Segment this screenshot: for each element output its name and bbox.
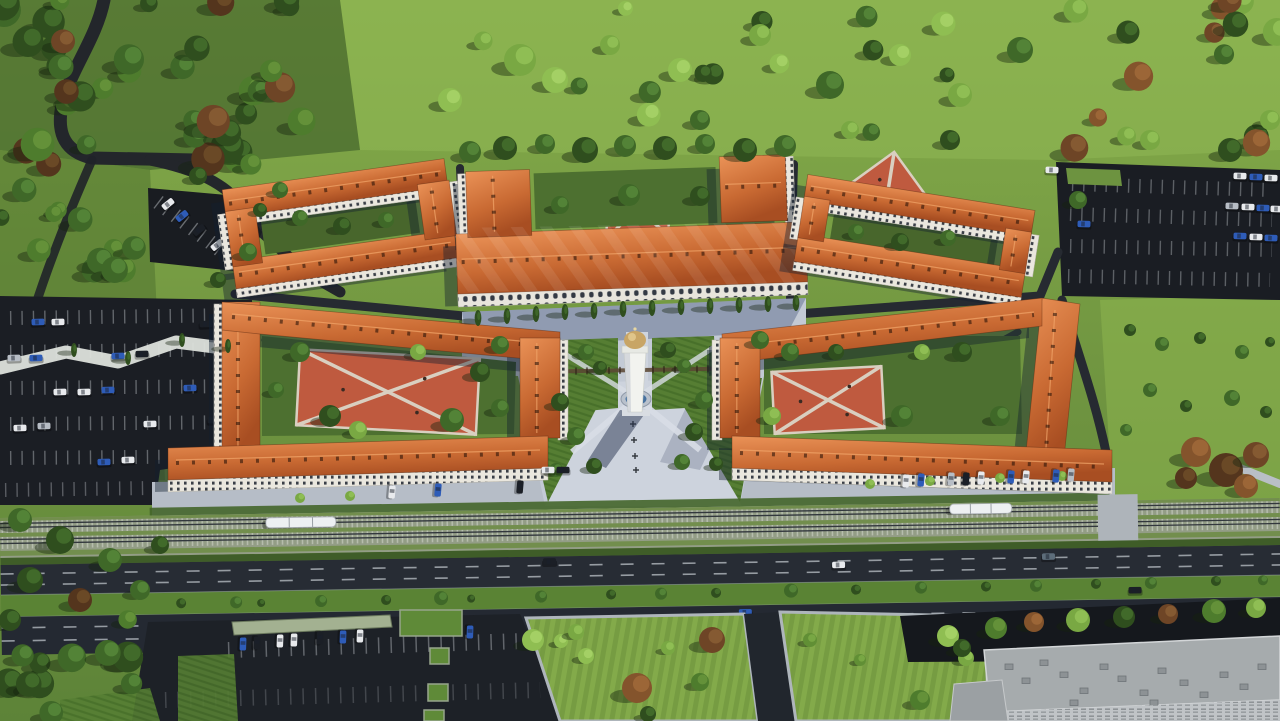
tree-highlight — [858, 655, 865, 662]
car-glass — [1237, 234, 1241, 239]
tree-highlight — [945, 627, 957, 639]
tree-highlight — [702, 393, 712, 403]
tree-highlight — [945, 69, 953, 77]
tree-highlight — [808, 634, 816, 642]
car-glass — [203, 322, 207, 327]
tree-highlight — [598, 362, 606, 370]
tree-highlight — [1071, 136, 1086, 151]
car — [1248, 173, 1263, 182]
tree-highlight — [777, 55, 788, 66]
tree-highlight — [111, 259, 126, 274]
planter-2 — [430, 648, 449, 664]
car — [1263, 174, 1278, 183]
tree-highlight — [24, 29, 41, 46]
scene — [0, 0, 1280, 721]
car — [541, 467, 556, 476]
tree-highlight — [227, 341, 230, 348]
car — [1005, 469, 1015, 485]
car — [1127, 587, 1142, 596]
bush — [1124, 324, 1136, 336]
scene-root — [0, 0, 1280, 721]
tree-highlight — [662, 138, 675, 151]
car-glass — [1274, 207, 1278, 212]
roof-vent — [1022, 678, 1030, 684]
tram — [946, 503, 1012, 515]
car-glass — [964, 476, 969, 480]
tree-highlight — [1148, 384, 1156, 392]
tree-highlight — [999, 474, 1005, 480]
tree-highlight — [1124, 128, 1134, 138]
tree-highlight — [1135, 64, 1151, 80]
tree-highlight — [692, 425, 702, 435]
tree-highlight — [929, 477, 935, 483]
tree-highlight — [757, 26, 769, 38]
roof-vent — [1180, 680, 1188, 686]
car — [6, 354, 21, 363]
bush — [345, 491, 355, 501]
car-glass — [1132, 588, 1136, 593]
tree-highlight — [869, 125, 879, 135]
car — [960, 471, 970, 487]
tram-crossing — [1098, 494, 1139, 543]
car-glass — [125, 458, 129, 463]
tree-highlight — [21, 180, 34, 193]
tree-highlight — [738, 299, 741, 307]
bush — [1265, 337, 1275, 347]
roof-vent — [1080, 688, 1088, 694]
roof — [520, 338, 560, 438]
lawn-plot-1 — [526, 614, 758, 721]
tree-highlight — [356, 423, 366, 433]
tree-highlight — [897, 46, 909, 58]
tree-highlight — [1269, 338, 1275, 344]
tree-highlight — [1230, 391, 1239, 400]
roof-light-stripes — [456, 222, 806, 292]
tree-highlight — [63, 81, 77, 95]
bush — [1235, 345, 1249, 359]
tree-highlight — [125, 47, 142, 64]
tree-highlight — [997, 408, 1008, 419]
tram-body — [266, 517, 336, 528]
tree-highlight — [216, 273, 225, 282]
hedge-field-1 — [178, 654, 238, 721]
gray-building-roof — [984, 636, 1280, 712]
car — [1065, 467, 1075, 483]
tree-highlight — [864, 8, 876, 20]
tree-highlight — [193, 38, 207, 52]
tree-highlight — [25, 673, 39, 687]
tree-highlight — [516, 47, 534, 65]
car-glass — [17, 426, 21, 431]
tree-highlight — [73, 345, 76, 352]
car — [900, 473, 910, 489]
car — [182, 384, 197, 393]
tram-body — [950, 503, 1012, 514]
tree-highlight — [535, 308, 538, 316]
car — [76, 388, 91, 397]
car — [1041, 553, 1056, 562]
car-glass — [1260, 206, 1264, 211]
tree-highlight — [1095, 110, 1105, 120]
tree-highlight — [33, 131, 52, 150]
bush — [1143, 383, 1157, 397]
car — [142, 420, 157, 429]
car — [1248, 233, 1263, 242]
tree-highlight — [51, 207, 60, 216]
tree-highlight — [551, 69, 565, 83]
car — [134, 350, 149, 359]
car — [12, 424, 27, 433]
tree-highlight — [48, 703, 61, 716]
tree-highlight — [848, 123, 858, 133]
car — [1044, 166, 1059, 175]
car-glass — [241, 641, 246, 645]
tree-highlight — [593, 305, 596, 313]
planter-3 — [428, 684, 448, 701]
tree-highlight — [947, 132, 958, 143]
tree-highlight — [698, 675, 708, 685]
tree-highlight — [584, 345, 593, 354]
tree-highlight — [1031, 614, 1042, 625]
tree-highlight — [77, 209, 91, 223]
tree-highlight — [299, 494, 305, 500]
car-glass — [904, 478, 909, 482]
car-glass — [33, 356, 37, 361]
tree-highlight — [1221, 46, 1232, 57]
tree-highlight — [258, 204, 266, 212]
gray-building-wing — [950, 680, 1008, 721]
car-glass — [105, 388, 109, 393]
tree-highlight — [17, 510, 30, 523]
car — [1050, 468, 1060, 484]
tree-highlight — [564, 306, 567, 314]
tree-highlight — [742, 140, 755, 153]
tree-highlight — [701, 66, 710, 75]
car — [432, 482, 442, 498]
tree-highlight — [917, 692, 928, 703]
aerial-render-stage — [0, 0, 1280, 721]
tree-highlight — [268, 62, 280, 74]
roof-vent — [1070, 700, 1078, 706]
car — [542, 558, 557, 567]
tree-highlight — [758, 333, 768, 343]
car — [337, 629, 346, 644]
tree-highlight — [158, 538, 168, 548]
tree-highlight — [1125, 23, 1138, 36]
tree-highlight — [416, 345, 425, 354]
tree-highlight — [131, 238, 144, 251]
bush — [925, 476, 935, 486]
tree-highlight — [899, 407, 911, 419]
tree-highlight — [542, 136, 553, 147]
tree-highlight — [58, 56, 72, 70]
parking-ne-hedge — [1066, 168, 1122, 186]
car — [274, 633, 283, 648]
car-glass — [560, 468, 564, 473]
tree-highlight — [960, 641, 970, 651]
tree-highlight — [558, 198, 568, 208]
tree — [0, 609, 21, 631]
roof — [720, 338, 760, 438]
car-glass — [1081, 222, 1085, 227]
car — [831, 562, 846, 571]
car-glass — [11, 356, 15, 361]
tree-highlight — [1121, 608, 1133, 620]
car-glass — [55, 320, 59, 325]
tree-highlight — [1147, 132, 1158, 143]
car — [354, 628, 363, 643]
tree-highlight — [869, 480, 875, 486]
car-glass — [1245, 205, 1249, 210]
car — [556, 467, 571, 476]
tree-highlight — [1253, 600, 1264, 611]
tree-highlight — [1211, 601, 1224, 614]
tree-highlight — [708, 629, 722, 643]
tree-highlight — [957, 85, 970, 98]
planter-2 — [430, 648, 449, 664]
tree-highlight — [1252, 444, 1266, 458]
planter-3 — [428, 684, 448, 701]
car-glass — [358, 633, 363, 637]
tree-highlight — [68, 646, 84, 662]
tree-highlight — [209, 108, 227, 126]
tree-highlight — [647, 83, 659, 95]
tree-highlight — [127, 353, 130, 360]
tree-highlight — [680, 455, 689, 464]
dome-highlight — [628, 333, 636, 341]
tree-highlight — [651, 302, 654, 310]
car-glass — [949, 476, 954, 480]
tree-highlight — [467, 143, 479, 155]
tree-highlight — [36, 240, 49, 253]
tree-highlight — [666, 343, 675, 352]
car-glass — [341, 634, 346, 638]
tram — [262, 517, 336, 529]
car — [1255, 204, 1270, 213]
tree-highlight — [697, 112, 708, 123]
roof-vent — [1140, 690, 1148, 696]
tree-highlight — [607, 37, 618, 48]
roof-vent — [1040, 660, 1048, 666]
tree-highlight — [940, 14, 953, 27]
car-glass — [1253, 175, 1257, 180]
tree-highlight — [506, 310, 509, 318]
tree-highlight — [56, 528, 71, 543]
roof-vent — [1220, 672, 1228, 678]
tree-highlight — [834, 345, 843, 354]
car — [1263, 234, 1278, 243]
tree-highlight — [1061, 472, 1067, 478]
tree-highlight — [327, 407, 339, 419]
tree-highlight — [1124, 425, 1131, 432]
tree-highlight — [622, 137, 634, 149]
tree-highlight — [574, 625, 583, 634]
tree-highlight — [1198, 333, 1205, 340]
tree-highlight — [124, 644, 141, 661]
tree-highlight — [530, 631, 542, 643]
tree-highlight — [181, 335, 184, 342]
car-glass — [101, 460, 105, 465]
tree-highlight — [1165, 606, 1176, 617]
roof-vent — [1200, 692, 1208, 698]
tree-highlight — [946, 231, 955, 240]
car — [1240, 203, 1255, 212]
car — [386, 484, 396, 500]
car-glass — [115, 354, 119, 359]
tree-highlight — [709, 300, 712, 308]
roof-vent — [1240, 684, 1248, 690]
tree-highlight — [502, 138, 515, 151]
tree-highlight — [993, 619, 1005, 631]
tree-highlight — [959, 344, 970, 355]
tree-highlight — [666, 642, 674, 650]
planter-4 — [424, 710, 444, 721]
car-glass — [187, 386, 191, 391]
car-glass — [1024, 474, 1029, 478]
playground-e — [771, 366, 884, 434]
roof-vent — [1005, 664, 1013, 670]
roof-vent — [1258, 664, 1266, 670]
car — [100, 386, 115, 395]
car-glass — [468, 629, 473, 633]
roof-vent — [1060, 672, 1068, 678]
tree-highlight — [203, 145, 221, 163]
tree-highlight — [76, 84, 93, 101]
bush — [1120, 424, 1132, 436]
hedge-field-1 — [178, 654, 238, 721]
tree-highlight — [1076, 193, 1086, 203]
tree-highlight — [1160, 338, 1168, 346]
bush — [1194, 332, 1206, 344]
car-glass — [979, 475, 984, 479]
tree-highlight — [633, 676, 650, 693]
tree-highlight — [77, 590, 90, 603]
tree-highlight — [243, 104, 255, 116]
car — [1076, 220, 1091, 229]
tree-highlight — [898, 235, 908, 245]
car-glass — [1237, 174, 1241, 179]
car-glass — [547, 559, 551, 564]
car — [915, 472, 925, 488]
dome-finial — [633, 327, 636, 330]
tree-highlight — [581, 139, 595, 153]
car — [120, 456, 135, 465]
bush — [1260, 406, 1272, 418]
tree-highlight — [44, 9, 62, 27]
tree-highlight — [1253, 131, 1268, 146]
roof-vent — [1150, 700, 1158, 706]
tree-highlight — [1073, 0, 1087, 14]
gray-building-wing — [950, 680, 1008, 721]
tree-highlight — [7, 611, 19, 623]
tree-highlight — [767, 298, 770, 306]
tree-highlight — [592, 459, 601, 468]
car-glass — [147, 422, 151, 427]
tree-highlight — [1264, 407, 1271, 414]
car — [30, 318, 45, 327]
car-glass — [1268, 236, 1272, 241]
tree-highlight — [477, 364, 488, 375]
tree-highlight — [498, 401, 508, 411]
bush — [295, 493, 305, 503]
tree-highlight — [20, 646, 32, 658]
car-glass — [35, 320, 39, 325]
tree-highlight — [107, 550, 120, 563]
car — [1232, 172, 1247, 181]
car-glass — [436, 487, 441, 491]
car-glass — [1009, 474, 1014, 478]
car-glass — [292, 637, 297, 641]
car-glass — [836, 562, 840, 567]
tree-highlight — [298, 211, 307, 220]
tree-highlight — [920, 345, 929, 354]
bush — [995, 473, 1005, 483]
tree-highlight — [710, 65, 722, 77]
tree-highlight — [1232, 14, 1246, 28]
tree-highlight — [340, 219, 350, 229]
parking-ne-hedge — [1066, 168, 1122, 186]
tree-highlight — [646, 707, 655, 716]
tree-highlight — [129, 675, 141, 687]
tree-highlight — [1240, 346, 1248, 354]
tree-highlight — [682, 360, 690, 368]
car — [1224, 202, 1239, 211]
tree-highlight — [1267, 112, 1278, 123]
tree-highlight — [584, 649, 593, 658]
tree-highlight — [137, 582, 148, 593]
tree-highlight — [26, 569, 40, 583]
car — [514, 479, 524, 495]
car-glass — [919, 477, 924, 481]
car — [237, 636, 246, 651]
tree-highlight — [680, 301, 683, 309]
bush — [865, 479, 875, 489]
tree-highlight — [574, 429, 584, 439]
car-glass — [139, 352, 143, 357]
tree-highlight — [477, 312, 480, 320]
tree-highlight — [702, 136, 713, 147]
tree-highlight — [196, 169, 206, 179]
car — [50, 318, 65, 327]
car-glass — [278, 638, 283, 642]
gray-building-roof — [984, 636, 1280, 712]
tree-highlight — [248, 155, 260, 167]
car-glass — [318, 635, 323, 639]
tree-highlight — [349, 492, 355, 498]
car-glass — [545, 468, 549, 473]
tree-highlight — [697, 188, 708, 199]
car-glass — [255, 640, 260, 644]
roof-vent — [1100, 664, 1108, 670]
roof-vent — [1118, 676, 1126, 682]
roof-light-stripes — [456, 222, 806, 292]
tree-highlight — [1183, 469, 1195, 481]
tree-highlight — [278, 183, 287, 192]
car-glass — [1069, 472, 1074, 476]
tree-highlight — [1243, 476, 1256, 489]
car — [288, 632, 297, 647]
tree-highlight — [677, 60, 690, 73]
tree-highlight — [1016, 39, 1030, 53]
tree-highlight — [782, 137, 794, 149]
car-glass — [81, 390, 85, 395]
tree-highlight — [498, 338, 508, 348]
tree-highlight — [714, 458, 722, 466]
car — [1020, 469, 1030, 485]
tree-highlight — [795, 297, 798, 305]
planter-4 — [424, 710, 444, 721]
car-glass — [1229, 204, 1233, 209]
